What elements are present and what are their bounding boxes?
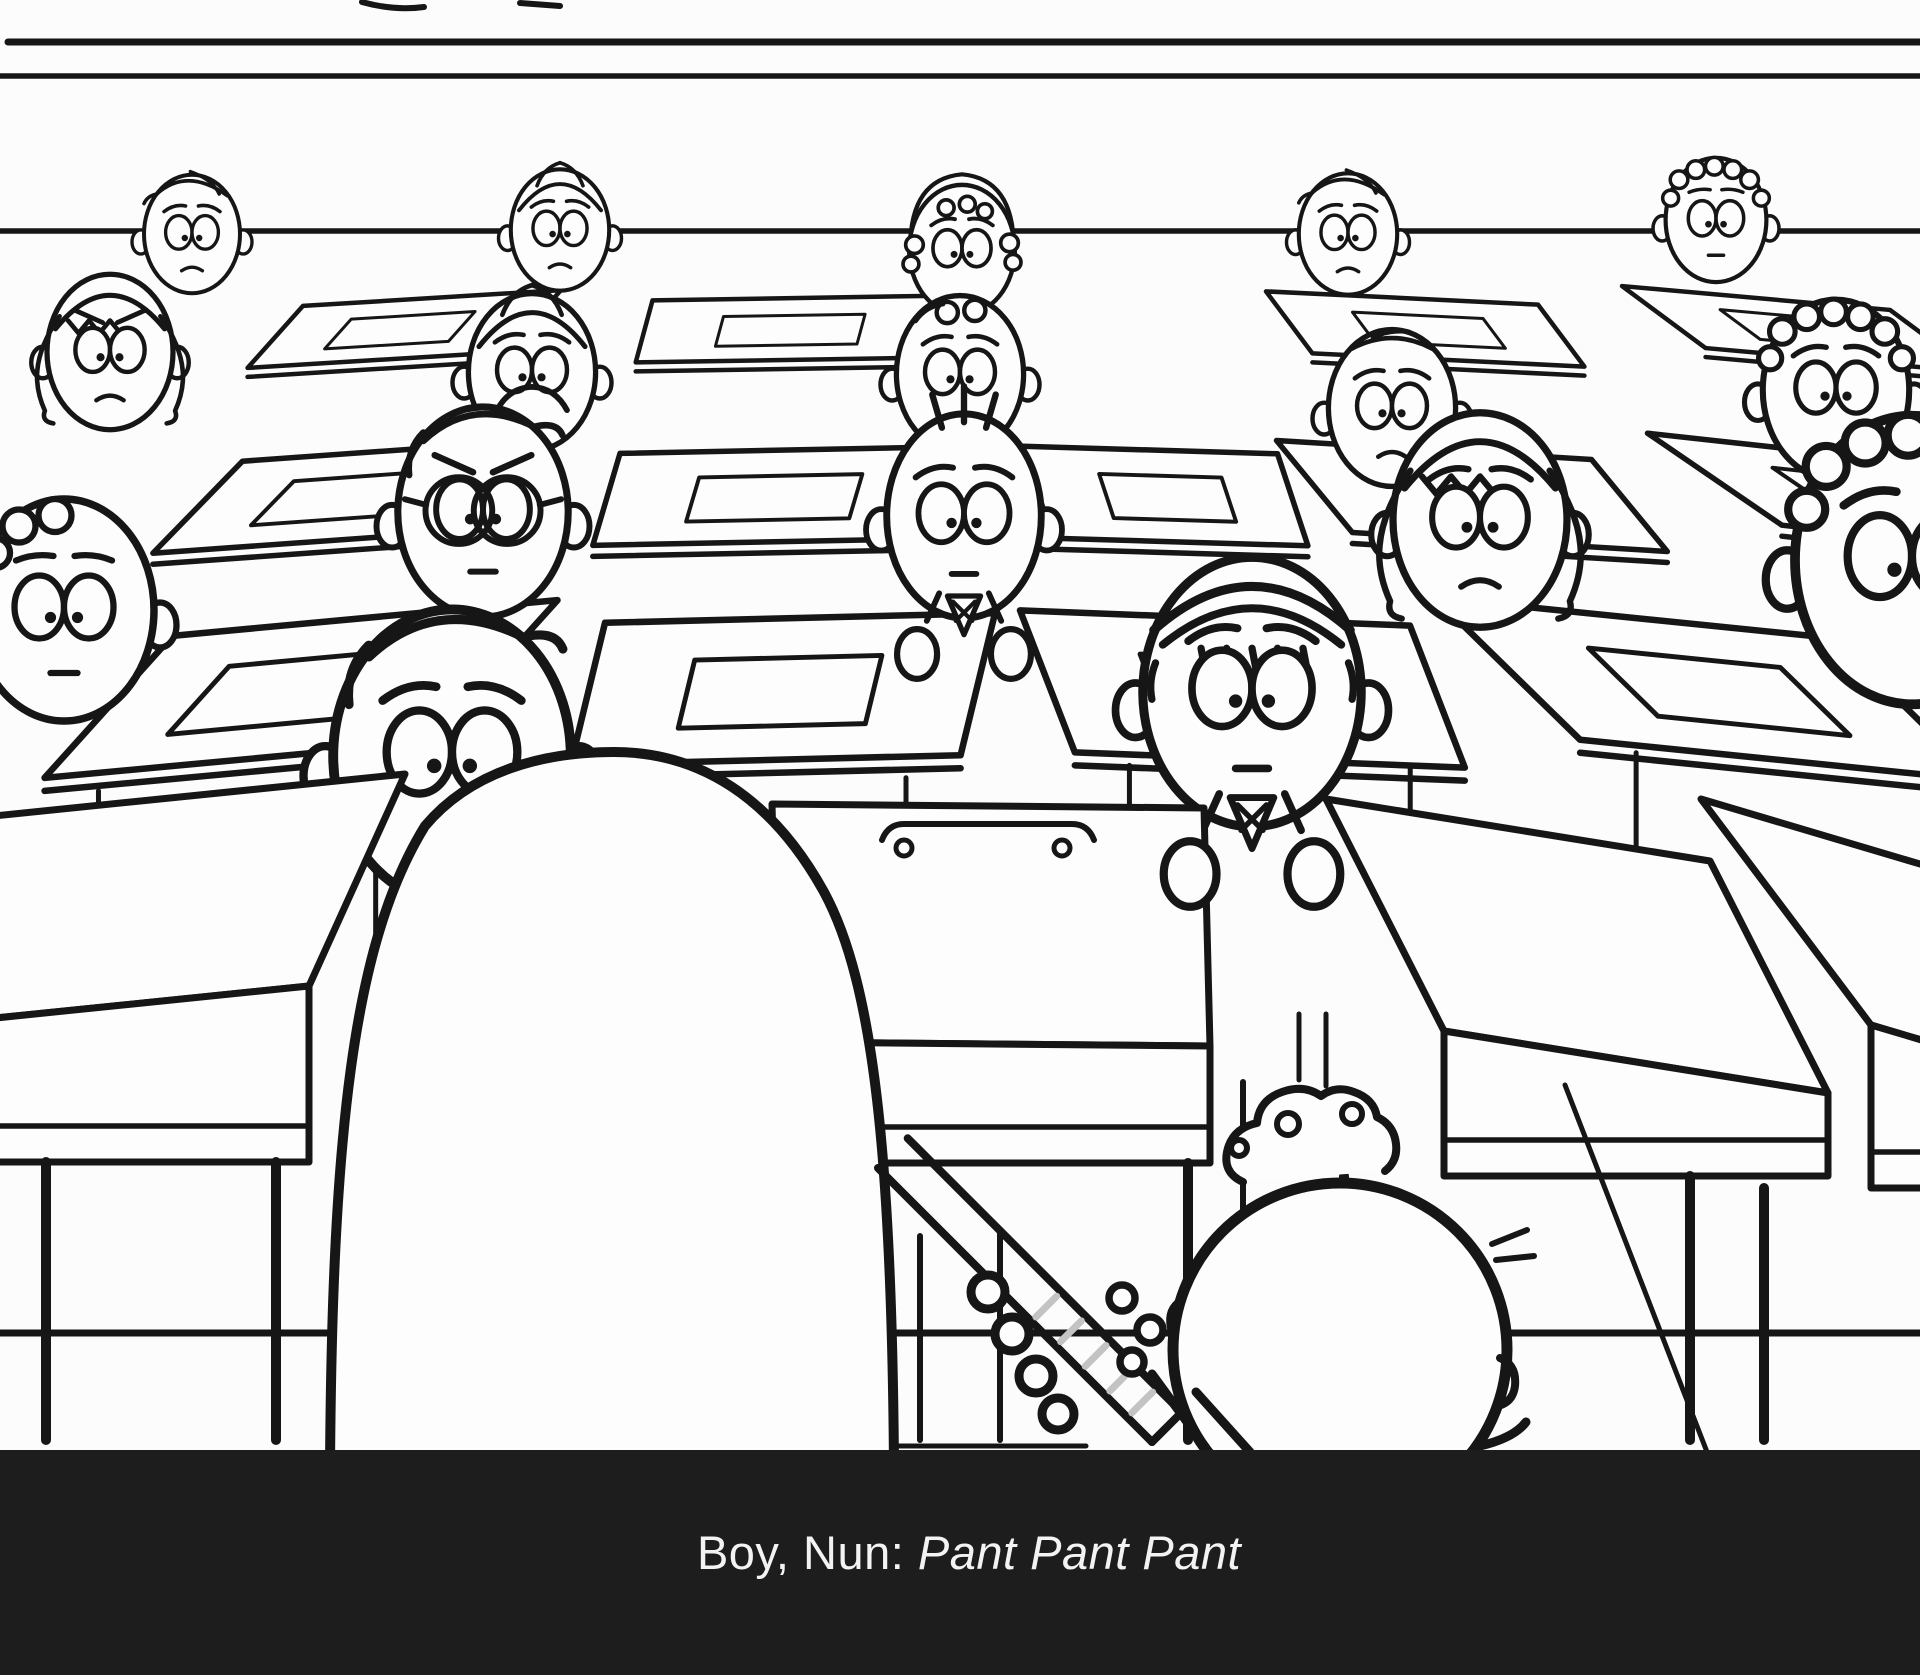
student-a5 <box>1653 157 1779 282</box>
storyboard-frame: Boy, Nun: Pant Pant Pant <box>0 0 1920 1675</box>
caption-speakers: Boy, Nun: <box>697 1526 918 1579</box>
caption-text: Boy, Nun: Pant Pant Pant <box>697 1529 1241 1576</box>
classroom-scene <box>0 0 1920 1675</box>
front-desks <box>0 774 1920 1440</box>
caption-bar: Boy, Nun: Pant Pant Pant <box>0 1450 1920 1675</box>
student-a4 <box>1287 170 1410 295</box>
desk <box>1023 446 1308 557</box>
strap <box>878 1138 1182 1442</box>
student-a2 <box>499 163 622 291</box>
nun-silhouette <box>330 752 894 1470</box>
student-a1 <box>132 172 252 294</box>
student-b1 <box>31 274 189 429</box>
caption-dialogue: Pant Pant Pant <box>918 1526 1241 1579</box>
foreground-layer <box>0 752 1920 1517</box>
